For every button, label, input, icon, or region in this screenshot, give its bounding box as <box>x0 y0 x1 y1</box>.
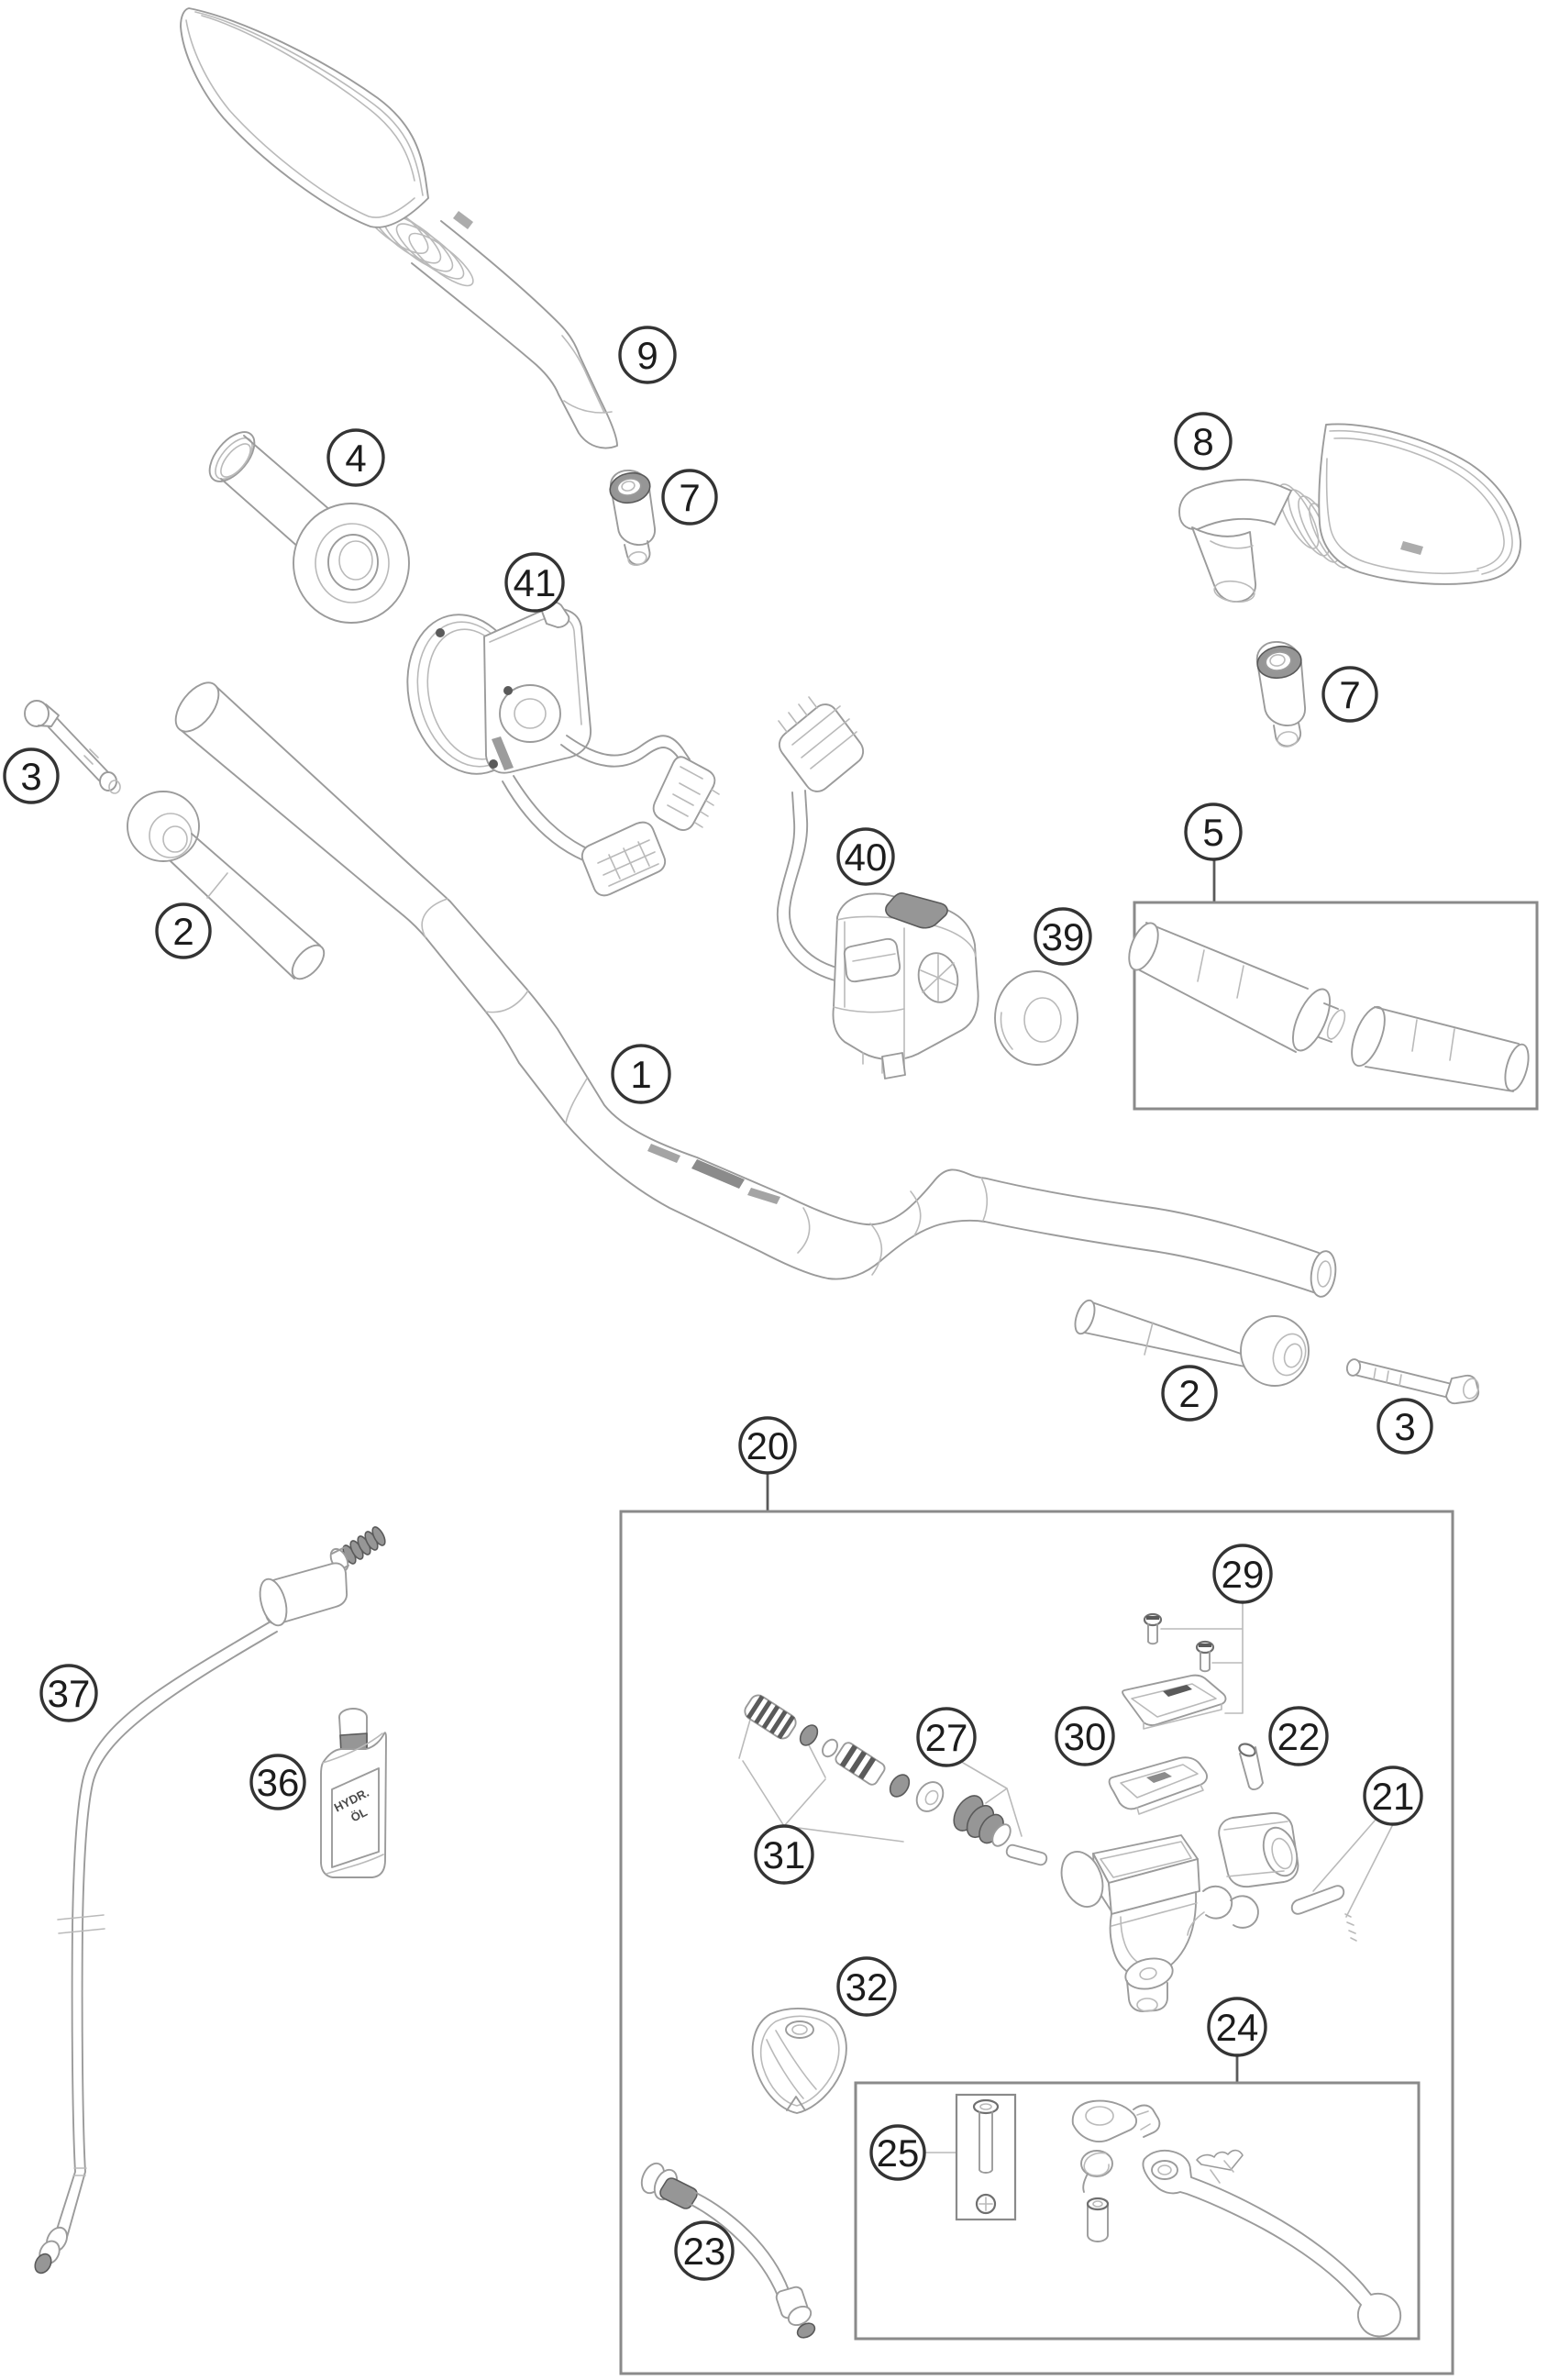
svg-text:8: 8 <box>1192 420 1213 463</box>
svg-text:20: 20 <box>746 1424 790 1467</box>
svg-text:32: 32 <box>846 1965 889 2009</box>
svg-text:7: 7 <box>1339 673 1360 716</box>
svg-text:9: 9 <box>636 334 658 377</box>
svg-text:29: 29 <box>1222 1553 1265 1596</box>
svg-text:36: 36 <box>257 1761 300 1804</box>
svg-text:40: 40 <box>845 836 888 879</box>
svg-text:25: 25 <box>877 2131 920 2175</box>
svg-text:27: 27 <box>925 1716 968 1759</box>
svg-text:41: 41 <box>514 561 557 604</box>
svg-text:7: 7 <box>679 476 700 519</box>
svg-text:3: 3 <box>20 755 41 798</box>
svg-text:2: 2 <box>1178 1372 1200 1415</box>
svg-text:4: 4 <box>345 437 366 480</box>
svg-text:39: 39 <box>1042 915 1085 958</box>
svg-text:30: 30 <box>1064 1715 1107 1758</box>
svg-text:3: 3 <box>1394 1405 1415 1448</box>
svg-text:5: 5 <box>1202 811 1223 854</box>
svg-text:37: 37 <box>48 1672 91 1715</box>
svg-text:2: 2 <box>172 910 193 953</box>
svg-text:31: 31 <box>763 1833 806 1876</box>
svg-text:1: 1 <box>630 1053 651 1096</box>
svg-text:22: 22 <box>1277 1715 1321 1758</box>
svg-text:23: 23 <box>683 2230 726 2273</box>
svg-text:21: 21 <box>1372 1775 1415 1818</box>
svg-text:24: 24 <box>1216 2006 1259 2049</box>
